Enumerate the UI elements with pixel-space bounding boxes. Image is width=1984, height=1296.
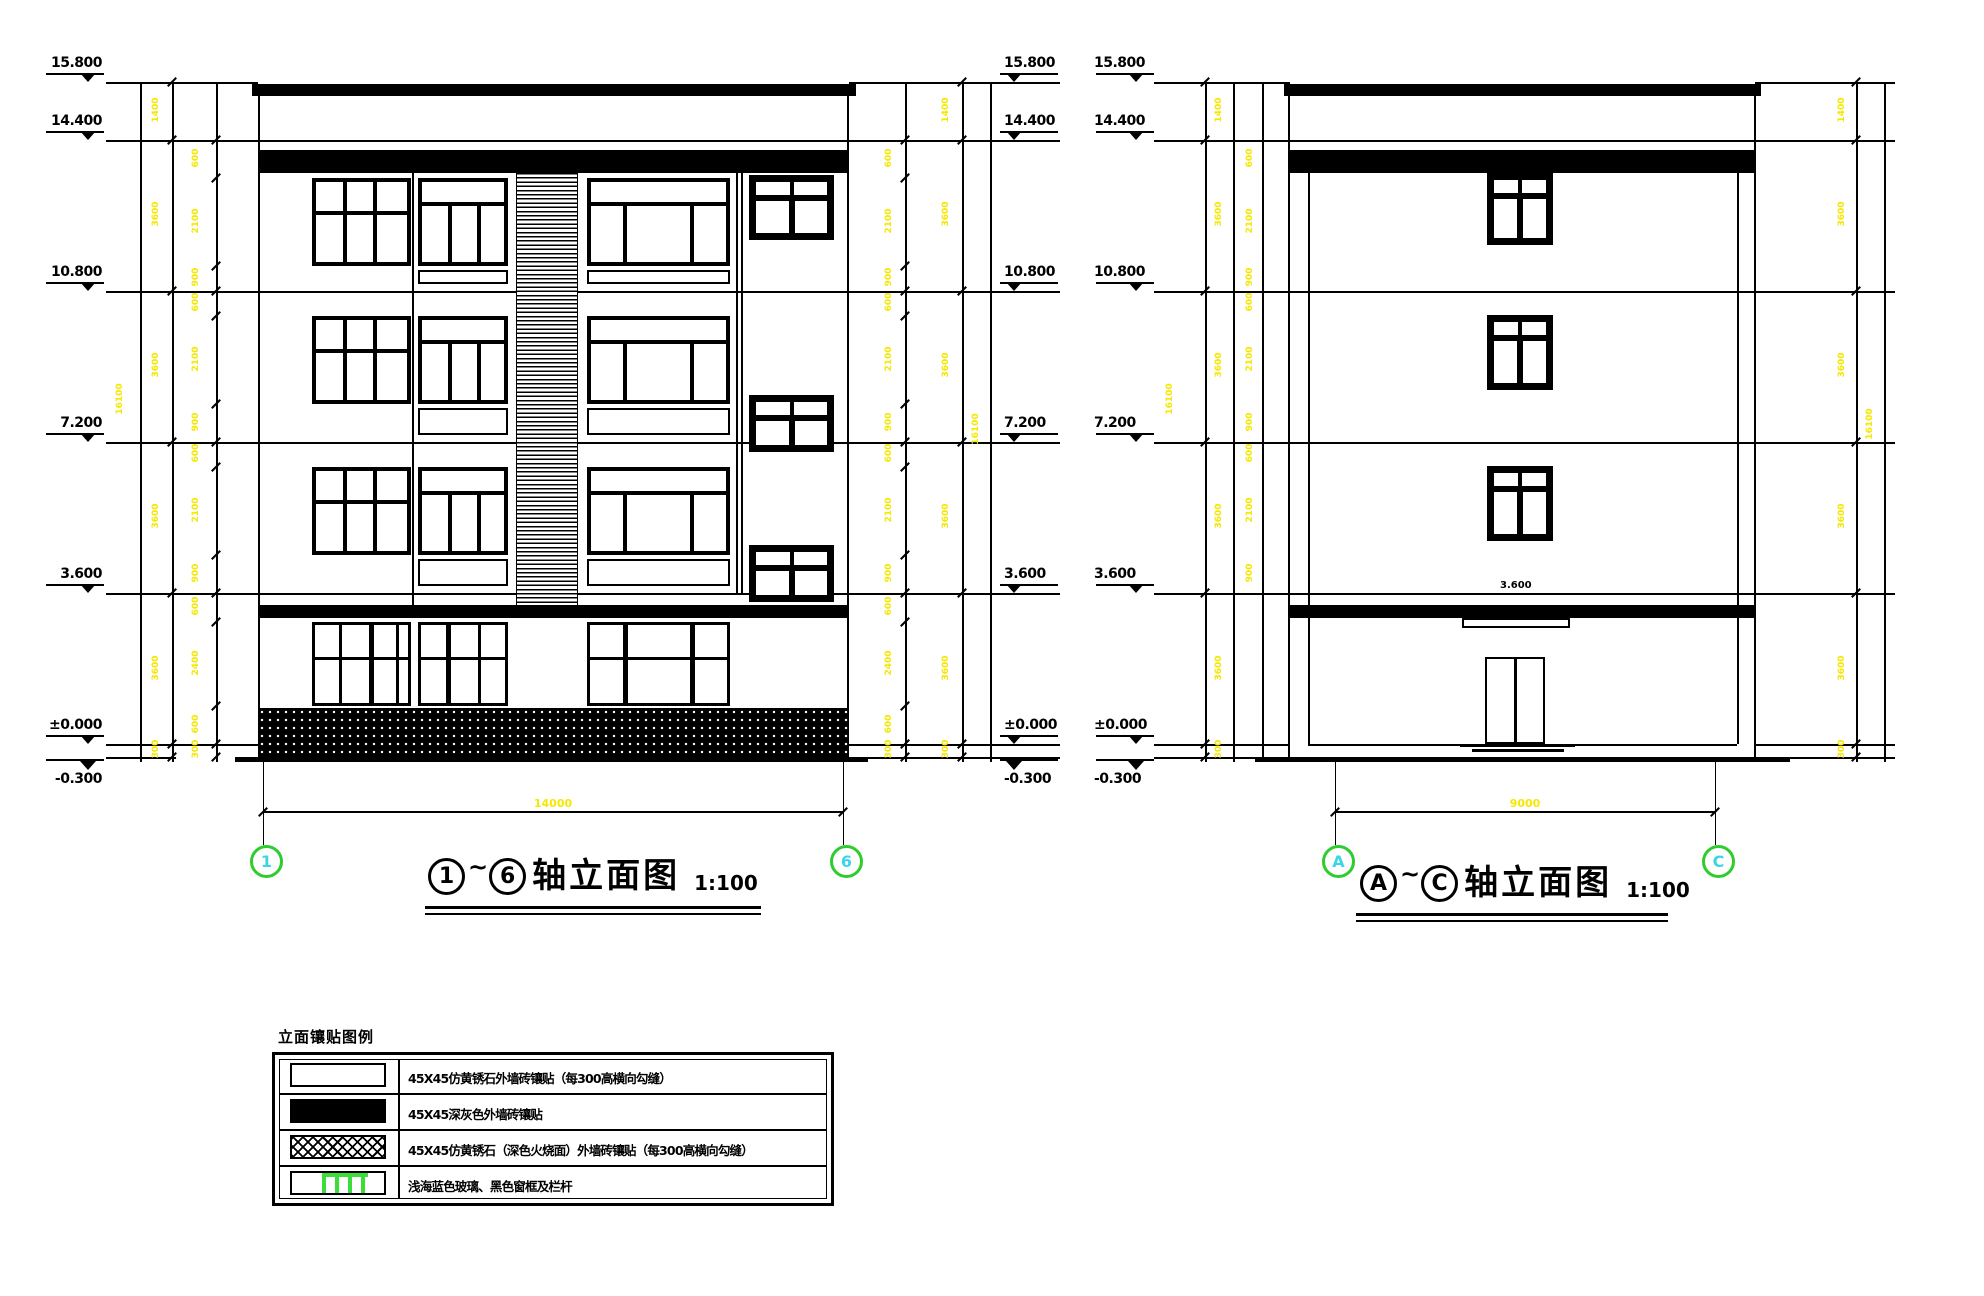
dim-floor-height: 3600 <box>941 347 951 383</box>
window-mullion <box>690 344 694 400</box>
legend-label: 浅海蓝色玻璃、黑色窗框及栏杆 <box>408 1176 572 1195</box>
dim-overall-height: 16100 <box>971 407 981 451</box>
level-line <box>849 442 1060 444</box>
level-label: 14.400 <box>40 113 102 129</box>
dim-window-height: 2400 <box>884 645 894 681</box>
spandrel-panel <box>418 559 508 586</box>
window-mullion <box>446 625 451 703</box>
level-flag-triangle <box>1006 735 1022 744</box>
window-rail <box>422 491 504 495</box>
dim-window-height: 600 <box>191 140 201 176</box>
window-mullion <box>373 320 377 400</box>
dim-line-vertical <box>990 82 992 762</box>
title-scale: 1:100 <box>694 871 758 895</box>
window-rail <box>591 202 726 206</box>
dim-floor-height: 300 <box>1214 731 1224 767</box>
level-flag-triangle <box>1128 584 1144 593</box>
window-rail <box>316 500 407 504</box>
window-6pane <box>312 178 411 266</box>
level-label: -0.300 <box>1094 771 1158 787</box>
dim-window-height: 900 <box>884 555 894 591</box>
level-label: 15.800 <box>40 55 102 71</box>
entrance-canopy <box>1462 618 1570 628</box>
window-mullion <box>1518 473 1522 486</box>
window-mullion <box>1517 341 1523 383</box>
level-label: 14.400 <box>1094 113 1158 129</box>
window-mullion <box>789 201 795 233</box>
dim-window-height: 300 <box>191 731 201 767</box>
legend-row-separator <box>279 1165 827 1167</box>
dim-line-vertical <box>140 82 142 762</box>
dim-line-horizontal <box>1335 811 1715 813</box>
level-flag-line <box>1096 73 1154 75</box>
floor-line <box>1290 140 1755 142</box>
dim-floor-height: 300 <box>941 731 951 767</box>
ground-line <box>235 757 868 762</box>
title-scale: 1:100 <box>1626 878 1690 902</box>
axis-bubble-A: A <box>1322 845 1355 878</box>
window-mullion <box>1518 322 1522 335</box>
level-label: ±0.000 <box>40 717 102 733</box>
level-label: 10.800 <box>40 264 102 280</box>
window-rail <box>421 657 505 660</box>
spandrel-panel <box>587 270 730 284</box>
window-mullion <box>690 495 694 551</box>
shopfront-window <box>587 622 730 706</box>
window-mullion <box>448 344 452 400</box>
dim-window-height: 600 <box>884 435 894 471</box>
dim-floor-height: 3600 <box>1837 498 1847 534</box>
level-line <box>849 82 1060 84</box>
window-mullion <box>1517 492 1523 534</box>
dim-floor-height: 3600 <box>1214 347 1224 383</box>
spandrel-panel <box>418 270 508 284</box>
window-mullion <box>789 571 795 595</box>
floor-line <box>1290 291 1755 293</box>
floor-line <box>1290 593 1755 595</box>
window-rail <box>316 349 407 353</box>
floor-beam-band <box>258 605 849 618</box>
dim-window-height: 600 <box>884 588 894 624</box>
level-label: ±0.000 <box>1004 717 1068 733</box>
window-mullion <box>369 625 374 703</box>
window-mullion <box>790 402 794 415</box>
window-rail <box>315 657 408 660</box>
legend-swatch-dark-grey-tile <box>290 1099 386 1123</box>
window-rail <box>422 340 504 344</box>
floor-line <box>258 140 849 142</box>
dim-window-height: 2100 <box>884 492 894 528</box>
window-transom <box>418 178 508 266</box>
dim-line-vertical <box>1262 82 1264 762</box>
level-flag-triangle <box>80 73 96 82</box>
facade-corner-line <box>1737 173 1739 744</box>
title-tilde: ~ <box>468 853 488 881</box>
window-mullion <box>373 471 377 551</box>
dim-overall-height: 16100 <box>115 377 125 421</box>
dim-floor-height: 300 <box>151 731 161 767</box>
level-flag-triangle <box>1006 73 1022 82</box>
facade-wall-edge <box>1754 96 1756 757</box>
dim-line-vertical <box>1856 82 1858 762</box>
facade-corner-line <box>1308 173 1310 744</box>
dim-line-vertical <box>905 82 907 762</box>
window-mullion <box>790 552 794 565</box>
dim-window-height: 900 <box>1245 555 1255 591</box>
level-line <box>1154 442 1290 444</box>
level-flag-triangle <box>1006 433 1022 442</box>
dim-window-height: 600 <box>191 284 201 320</box>
title-axis-circle-A: A <box>1360 865 1397 902</box>
level-flag-triangle <box>80 282 96 291</box>
dim-line-vertical <box>172 82 174 762</box>
level-line <box>106 140 258 142</box>
door-threshold <box>1460 744 1575 747</box>
facade-wall-edge <box>847 96 849 757</box>
window-mullion <box>623 344 627 400</box>
level-flag-triangle <box>80 761 96 770</box>
level-line <box>106 291 258 293</box>
dim-window-height: 600 <box>191 435 201 471</box>
dim-floor-height: 3600 <box>941 498 951 534</box>
dim-line-vertical <box>1205 82 1207 762</box>
dim-window-height: 600 <box>1245 284 1255 320</box>
window-rail <box>591 340 726 344</box>
dim-window-height: 900 <box>191 555 201 591</box>
dim-left-total-width: 14000 <box>518 797 588 810</box>
window-mullion <box>477 344 481 400</box>
dim-floor-height: 3600 <box>941 196 951 232</box>
level-flag-triangle <box>80 131 96 140</box>
window-mullion <box>690 625 695 703</box>
dim-line-vertical <box>1884 82 1886 762</box>
level-label: 10.800 <box>1004 264 1068 280</box>
window-mullion <box>343 471 347 551</box>
facade-joint-line <box>412 173 414 605</box>
dim-window-height: 2400 <box>191 645 201 681</box>
dim-floor-height: 3600 <box>151 498 161 534</box>
level-flag-triangle <box>80 584 96 593</box>
door-step <box>1472 749 1564 752</box>
level-line <box>1755 744 1895 746</box>
axis-bubble-6: 6 <box>830 845 863 878</box>
title-underline <box>425 906 761 909</box>
level-line <box>849 140 1060 142</box>
window-wide <box>587 316 730 404</box>
roof-slab <box>252 84 856 96</box>
level-line <box>849 593 1060 595</box>
window-mullion <box>448 495 452 551</box>
axis-leader-line <box>843 762 844 845</box>
dim-window-height: 2100 <box>884 203 894 239</box>
level-line <box>1755 593 1895 595</box>
base-plinth-hatch <box>258 708 849 757</box>
level-line <box>1755 82 1895 84</box>
dim-window-height: 2100 <box>191 203 201 239</box>
window-mullion <box>373 182 377 262</box>
window-mullion <box>343 182 347 262</box>
facade-wall-edge <box>1288 96 1290 757</box>
dim-window-height: 2100 <box>1245 492 1255 528</box>
window-rail <box>316 211 407 215</box>
level-flag-triangle <box>1006 761 1022 770</box>
level-flag-triangle <box>1128 282 1144 291</box>
dim-floor-height: 3600 <box>151 347 161 383</box>
title-right-elevation: A ~ C 轴立面图 1:100 <box>1360 855 1690 904</box>
dim-line-vertical <box>1233 82 1235 762</box>
spandrel-panel <box>587 408 730 435</box>
window-mullion <box>343 320 347 400</box>
legend-label: 45X45深灰色外墙砖镶贴 <box>408 1104 542 1123</box>
window-mullion <box>1517 199 1523 238</box>
legend-title: 立面镶贴图例 <box>278 1026 374 1047</box>
level-line <box>849 744 1060 746</box>
dim-floor-height: 3600 <box>1214 650 1224 686</box>
dim-window-height: 600 <box>884 140 894 176</box>
axis-leader-line <box>263 762 264 845</box>
legend-label: 45X45仿黄锈石外墙砖镶贴（每300高横向勾缝） <box>408 1068 671 1087</box>
level-line <box>1755 291 1895 293</box>
window-mullion <box>396 625 399 703</box>
window-mullion <box>623 206 627 262</box>
window-mullion <box>448 206 452 262</box>
dim-window-height: 2100 <box>1245 341 1255 377</box>
spandrel-panel <box>587 559 730 586</box>
window-mullion <box>790 182 794 195</box>
legend-label: 45X45仿黄锈石（深色火烧面）外墙砖镶贴（每300高横向勾缝） <box>408 1140 753 1159</box>
dim-line-vertical <box>962 82 964 762</box>
legend-row-separator <box>279 1129 827 1131</box>
level-flag-triangle <box>1128 735 1144 744</box>
dim-floor-height: 300 <box>1837 731 1847 767</box>
architectural-drawing-canvas: 15.80014.40010.8007.2003.600±0.000-0.300… <box>0 0 1984 1296</box>
level-flag-triangle <box>1006 584 1022 593</box>
level-flag-triangle <box>80 735 96 744</box>
title-left-elevation: 1 ~ 6 轴立面图 1:100 <box>428 848 758 897</box>
level-flag-line <box>1096 131 1154 133</box>
legend-row-separator <box>279 1093 827 1095</box>
level-flag-line <box>1096 282 1154 284</box>
level-line <box>106 593 258 595</box>
window-6pane <box>312 467 411 555</box>
level-flag-triangle <box>1128 433 1144 442</box>
level-label: 15.800 <box>1094 55 1158 71</box>
glass-railing-icon <box>322 1173 368 1193</box>
spandrel-panel <box>418 408 508 435</box>
parapet-tile-band <box>258 150 849 173</box>
level-label: 7.200 <box>1094 415 1158 431</box>
window-6pane <box>312 316 411 404</box>
facade-wall-edge <box>258 96 260 757</box>
level-label: 15.800 <box>1004 55 1068 71</box>
axis-bubble-C: C <box>1702 845 1735 878</box>
window-wide <box>587 178 730 266</box>
window-mullion <box>623 625 628 703</box>
dim-overall-height: 16100 <box>1865 402 1875 446</box>
facade-joint-line <box>741 173 743 593</box>
legend-swatch-yellow-rust-tile <box>290 1063 386 1087</box>
dim-line-vertical <box>216 82 218 762</box>
facade-joint-line <box>736 173 738 593</box>
level-line <box>106 442 258 444</box>
level-line <box>106 744 258 746</box>
dim-window-height: 600 <box>191 588 201 624</box>
title-underline <box>1356 913 1668 916</box>
window-mullion <box>623 495 627 551</box>
dim-floor-height: 3600 <box>1837 196 1847 232</box>
window-rail <box>590 657 727 660</box>
ground-line <box>1255 757 1790 762</box>
dim-window-height: 600 <box>1245 435 1255 471</box>
legend-swatch-flamed-stone-tile <box>290 1135 386 1159</box>
level-label: 3.600 <box>1004 566 1068 582</box>
dim-floor-height: 3600 <box>1837 650 1847 686</box>
dim-window-height: 2100 <box>884 341 894 377</box>
level-label: 3.600 <box>1094 566 1158 582</box>
window-rail <box>591 491 726 495</box>
dim-right-total-width: 9000 <box>1490 797 1560 810</box>
window-transom <box>418 316 508 404</box>
parapet-tile-band <box>1290 150 1755 173</box>
canopy-level-annotation: 3.600 <box>1500 580 1532 591</box>
level-line <box>106 82 258 84</box>
dim-window-height: 2100 <box>1245 203 1255 239</box>
level-label: 3.600 <box>40 566 102 582</box>
door-center-line <box>1514 659 1517 744</box>
title-underline <box>425 913 761 915</box>
stair-glazing-strip <box>516 173 578 605</box>
title-axis-circle-C: C <box>1421 865 1458 902</box>
shopfront-window <box>418 622 508 706</box>
floor-line <box>1290 442 1755 444</box>
level-line <box>1154 593 1290 595</box>
axis-leader-line <box>1715 762 1716 845</box>
level-flag-line <box>1096 735 1154 737</box>
window-mullion <box>789 421 795 445</box>
title-underline <box>1356 920 1668 922</box>
dim-window-height: 2100 <box>191 341 201 377</box>
level-flag-line <box>1096 433 1154 435</box>
window-rail <box>422 202 504 206</box>
level-label: -0.300 <box>1004 771 1068 787</box>
window-mullion <box>477 495 481 551</box>
title-text: 轴立面图 <box>532 848 680 897</box>
title-axis-circle-6: 6 <box>489 858 526 895</box>
level-label: 7.200 <box>40 415 102 431</box>
floor-beam-band <box>1290 605 1755 618</box>
title-axis-circle-1: 1 <box>428 858 465 895</box>
dim-floor-height: 1400 <box>1837 92 1847 128</box>
window-mullion <box>1518 180 1522 193</box>
level-flag-triangle <box>1006 131 1022 140</box>
axis-bubble-1: 1 <box>250 845 283 878</box>
level-flag-triangle <box>1128 761 1144 770</box>
dim-window-height: 600 <box>884 284 894 320</box>
level-line <box>849 291 1060 293</box>
dim-window-height: 600 <box>1245 140 1255 176</box>
dim-window-height: 2100 <box>191 492 201 528</box>
level-flag-triangle <box>1006 282 1022 291</box>
window-transom <box>418 467 508 555</box>
dim-floor-height: 3600 <box>941 650 951 686</box>
level-flag-line <box>1096 584 1154 586</box>
axis-leader-line <box>1335 762 1336 845</box>
roof-slab <box>1284 84 1761 96</box>
level-line <box>1154 291 1290 293</box>
dim-line-horizontal <box>263 811 843 813</box>
window-wide <box>587 467 730 555</box>
dim-floor-height: 3600 <box>1214 498 1224 534</box>
dim-floor-height: 3600 <box>1214 196 1224 232</box>
dim-floor-height: 3600 <box>151 650 161 686</box>
level-label: -0.300 <box>40 771 102 787</box>
level-line <box>1154 82 1290 84</box>
window-mullion <box>477 206 481 262</box>
dim-floor-height: 1400 <box>1214 92 1224 128</box>
level-flag-triangle <box>1128 131 1144 140</box>
dim-window-height: 300 <box>884 731 894 767</box>
level-label: 10.800 <box>1094 264 1158 280</box>
title-text: 轴立面图 <box>1464 855 1612 904</box>
dim-floor-height: 1400 <box>151 92 161 128</box>
level-flag-line <box>1096 759 1154 761</box>
window-mullion <box>690 206 694 262</box>
level-flag-triangle <box>1128 73 1144 82</box>
dim-floor-height: 3600 <box>1837 347 1847 383</box>
level-label: 7.200 <box>1004 415 1068 431</box>
dim-floor-height: 3600 <box>151 196 161 232</box>
level-flag-triangle <box>80 433 96 442</box>
level-line <box>1154 140 1290 142</box>
level-label: 14.400 <box>1004 113 1068 129</box>
title-tilde: ~ <box>1400 860 1420 888</box>
window-mullion <box>478 625 481 703</box>
dim-overall-height: 16100 <box>1165 377 1175 421</box>
level-label: ±0.000 <box>1094 717 1158 733</box>
window-mullion <box>339 625 342 703</box>
level-line <box>1755 140 1895 142</box>
dim-floor-height: 1400 <box>941 92 951 128</box>
